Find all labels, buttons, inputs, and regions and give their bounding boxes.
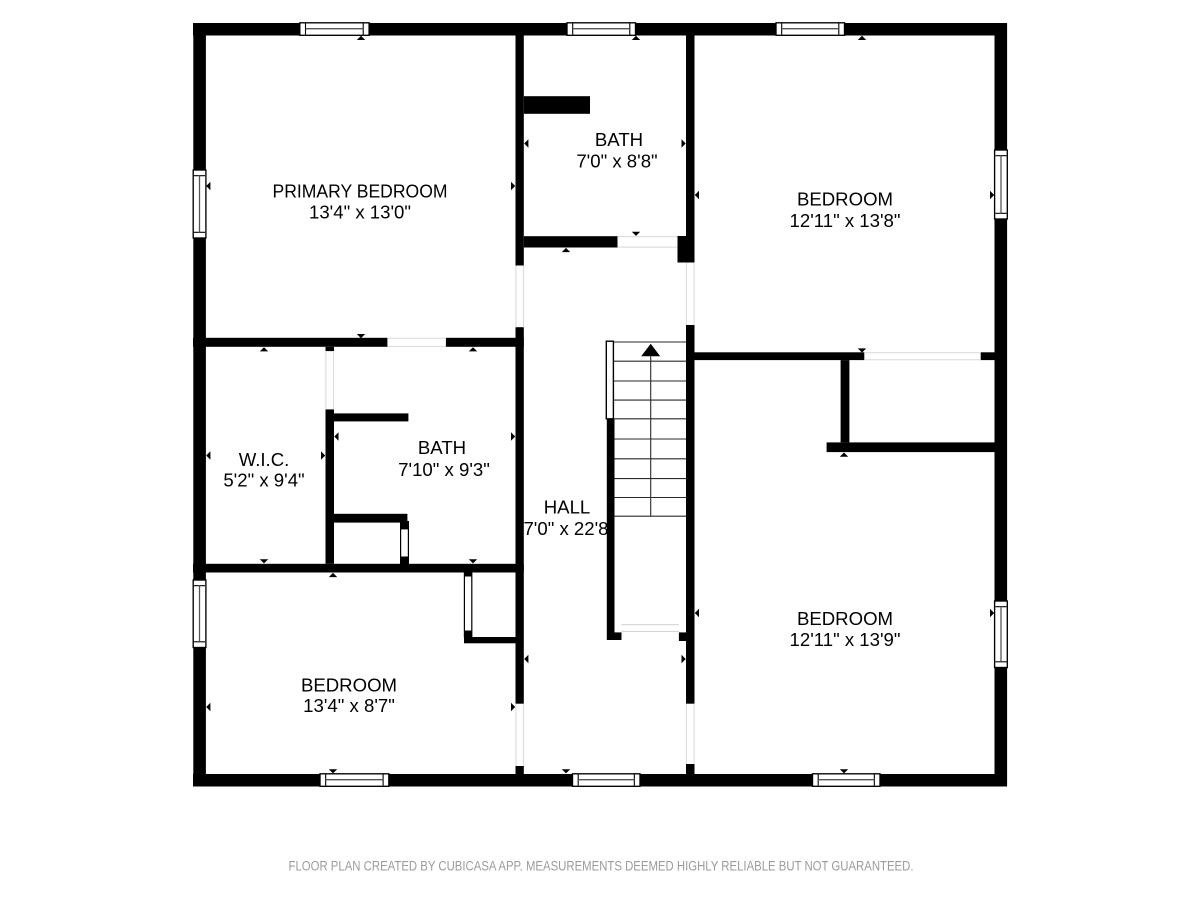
svg-text:W.I.C.: W.I.C.: [239, 449, 290, 470]
svg-text:HALL: HALL: [544, 497, 591, 518]
svg-text:BEDROOM: BEDROOM: [797, 189, 893, 210]
svg-text:7'0" x 8'8": 7'0" x 8'8": [576, 151, 657, 172]
svg-text:12'11" x 13'9": 12'11" x 13'9": [790, 629, 901, 650]
svg-text:FLOOR PLAN CREATED BY CUBICASA: FLOOR PLAN CREATED BY CUBICASA APP. MEAS…: [289, 859, 914, 874]
svg-text:BATH: BATH: [595, 129, 643, 150]
svg-text:7'0" x 22'8: 7'0" x 22'8: [523, 518, 608, 539]
svg-text:BATH: BATH: [418, 437, 466, 458]
svg-text:BEDROOM: BEDROOM: [301, 675, 397, 696]
svg-text:BEDROOM: BEDROOM: [797, 608, 893, 629]
svg-text:PRIMARY BEDROOM: PRIMARY BEDROOM: [273, 181, 448, 202]
svg-text:7'10" x 9'3": 7'10" x 9'3": [398, 459, 490, 480]
svg-text:12'11" x 13'8": 12'11" x 13'8": [790, 210, 901, 231]
svg-text:5'2" x 9'4": 5'2" x 9'4": [223, 470, 304, 491]
svg-text:13'4" x 13'0": 13'4" x 13'0": [309, 202, 411, 223]
svg-text:13'4" x 8'7": 13'4" x 8'7": [303, 695, 395, 716]
